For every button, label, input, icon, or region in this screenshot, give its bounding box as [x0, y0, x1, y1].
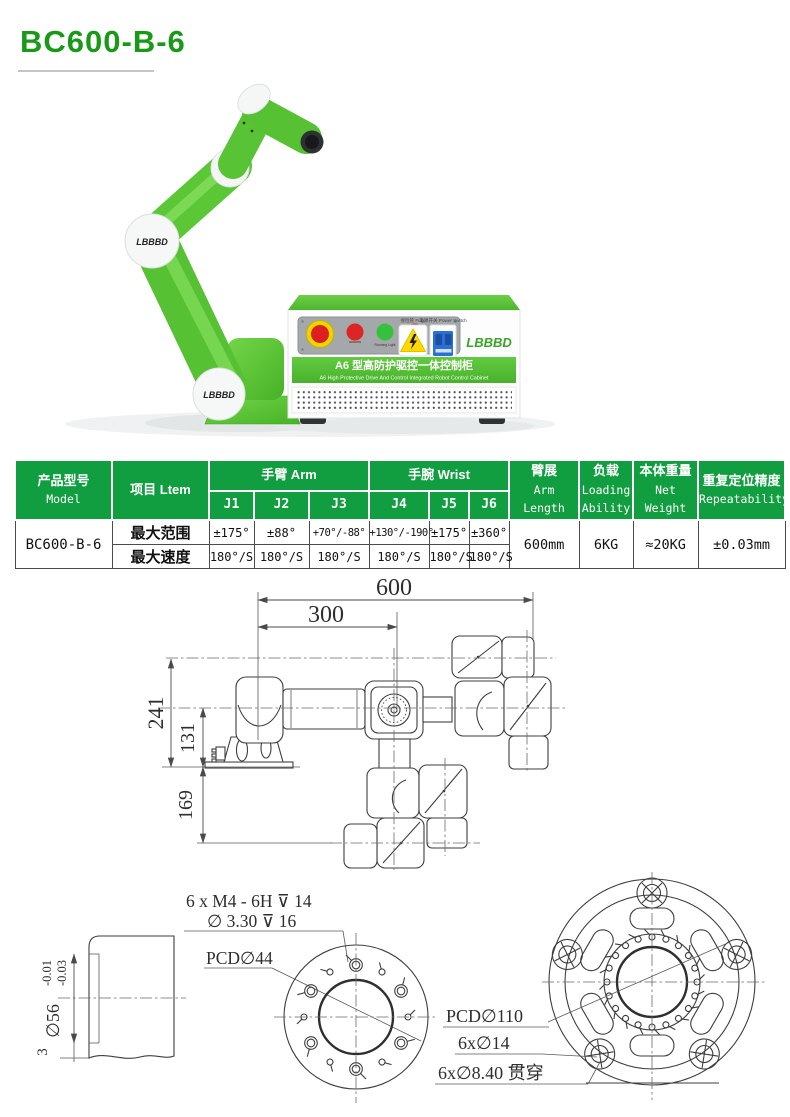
group-wrist: 手腕 Wrist	[369, 460, 509, 491]
dim-131: 131	[177, 723, 199, 753]
running-light-label: Running Light	[375, 343, 396, 347]
col-loading: 负载 Loading Ability	[579, 460, 633, 520]
col-repeatability: 重复定位精度 Repeatability	[698, 460, 785, 520]
repeatability-value: ±0.03mm	[698, 520, 785, 569]
dim-169: 169	[175, 790, 197, 820]
spec-table-wrap: 产品型号 Model 项目 Ltem 手臂 Arm 手腕 Wrist 臂展 Ar…	[14, 459, 786, 569]
col-model: 产品型号 Model	[15, 460, 112, 520]
tolerance-lower: -0.03	[55, 960, 69, 986]
col-j6: J6	[469, 491, 509, 520]
col-j3: J3	[309, 491, 369, 520]
speed-label: 最大速度	[112, 545, 209, 569]
base-flange-notes: PCD∅110 6x∅14 6x∅8.40 贯穿	[435, 1006, 601, 1084]
dim-600: 600	[376, 575, 412, 601]
group-arm: 手臂 Arm	[209, 460, 369, 491]
flange-drawings: -0.01 -0.03 ∅56 3 6 x M4 - 6H ⊽ 14 ∅ 3.3…	[10, 870, 782, 1116]
range-row: BC600-B-6 最大范围 ±175° ±88° +70°/-88° +130…	[15, 520, 785, 545]
tool-flange-notes: 6 x M4 - 6H ⊽ 14 ∅ 3.30 ⊽ 16 PCD∅44	[184, 891, 421, 1041]
power-button	[347, 324, 364, 341]
base-flange-face-view	[542, 872, 766, 1100]
cabinet-lid	[288, 295, 520, 310]
datasheet-page: BC600-B-6	[0, 0, 790, 1117]
col-j4: J4	[369, 491, 429, 520]
col-net-weight: 本体重量 Net Weight	[633, 460, 698, 520]
arm-length-value: 600mm	[509, 520, 579, 569]
page-title: BC600-B-6	[20, 24, 186, 60]
robot-outline	[205, 636, 551, 868]
hole-note: ∅ 3.30 ⊽ 16	[207, 911, 297, 931]
net-weight-value: ≈20KG	[633, 520, 698, 569]
dim-241: 241	[143, 697, 168, 730]
model-value: BC600-B-6	[15, 520, 112, 569]
through-note: 6x∅8.40 贯穿	[438, 1063, 544, 1083]
running-light	[377, 324, 394, 341]
loading-value: 6KG	[579, 520, 633, 569]
pcd110-note: PCD∅110	[446, 1006, 523, 1026]
robot-lower-arm	[157, 247, 224, 388]
step-3: 3	[35, 1048, 51, 1056]
col-item: 项目 Ltem	[112, 460, 209, 520]
cabinet-title-en: A6 High Protective Drive And Control Int…	[320, 376, 489, 382]
col-arm-length: 臂展 Arm Length	[509, 460, 579, 520]
dimension-drawing: 600 300 241 131 169	[140, 575, 620, 875]
range-label: 最大范围	[112, 520, 209, 545]
pcd44-note: PCD∅44	[206, 948, 273, 968]
spec-table: 产品型号 Model 项目 Ltem 手臂 Arm 手腕 Wrist 臂展 Ar…	[14, 459, 786, 569]
col-j1: J1	[209, 491, 254, 520]
brand-logo-shoulder: LBBBD	[203, 390, 235, 400]
col-j2: J2	[254, 491, 309, 520]
bolt-note: 6x∅14	[458, 1033, 510, 1053]
brand-logo-elbow: LBBBD	[136, 237, 168, 247]
brand-logo-cabinet: LBBBD	[466, 335, 512, 350]
diameter-56: ∅56	[43, 1004, 63, 1038]
tolerance-upper: -0.01	[40, 960, 54, 986]
tool-flange-side-view: -0.01 -0.03 ∅56 3	[35, 936, 186, 1062]
thread-note: 6 x M4 - 6H ⊽ 14	[186, 891, 312, 911]
col-j5: J5	[429, 491, 469, 520]
dim-300: 300	[308, 602, 344, 628]
cabinet-title-zh: A6 型高防护驱控一体控制柜	[335, 358, 473, 372]
power-switch-label: 电源开关 Power Switch	[419, 317, 467, 324]
control-cabinet: Running Light Alarm Light 保险管 Fuse 电源开关 …	[288, 295, 520, 424]
product-photo-illustration: LBBBD LBBBD Running Light Alarm Light 保险…	[60, 60, 620, 440]
tool-flange-face-view	[274, 933, 438, 1103]
